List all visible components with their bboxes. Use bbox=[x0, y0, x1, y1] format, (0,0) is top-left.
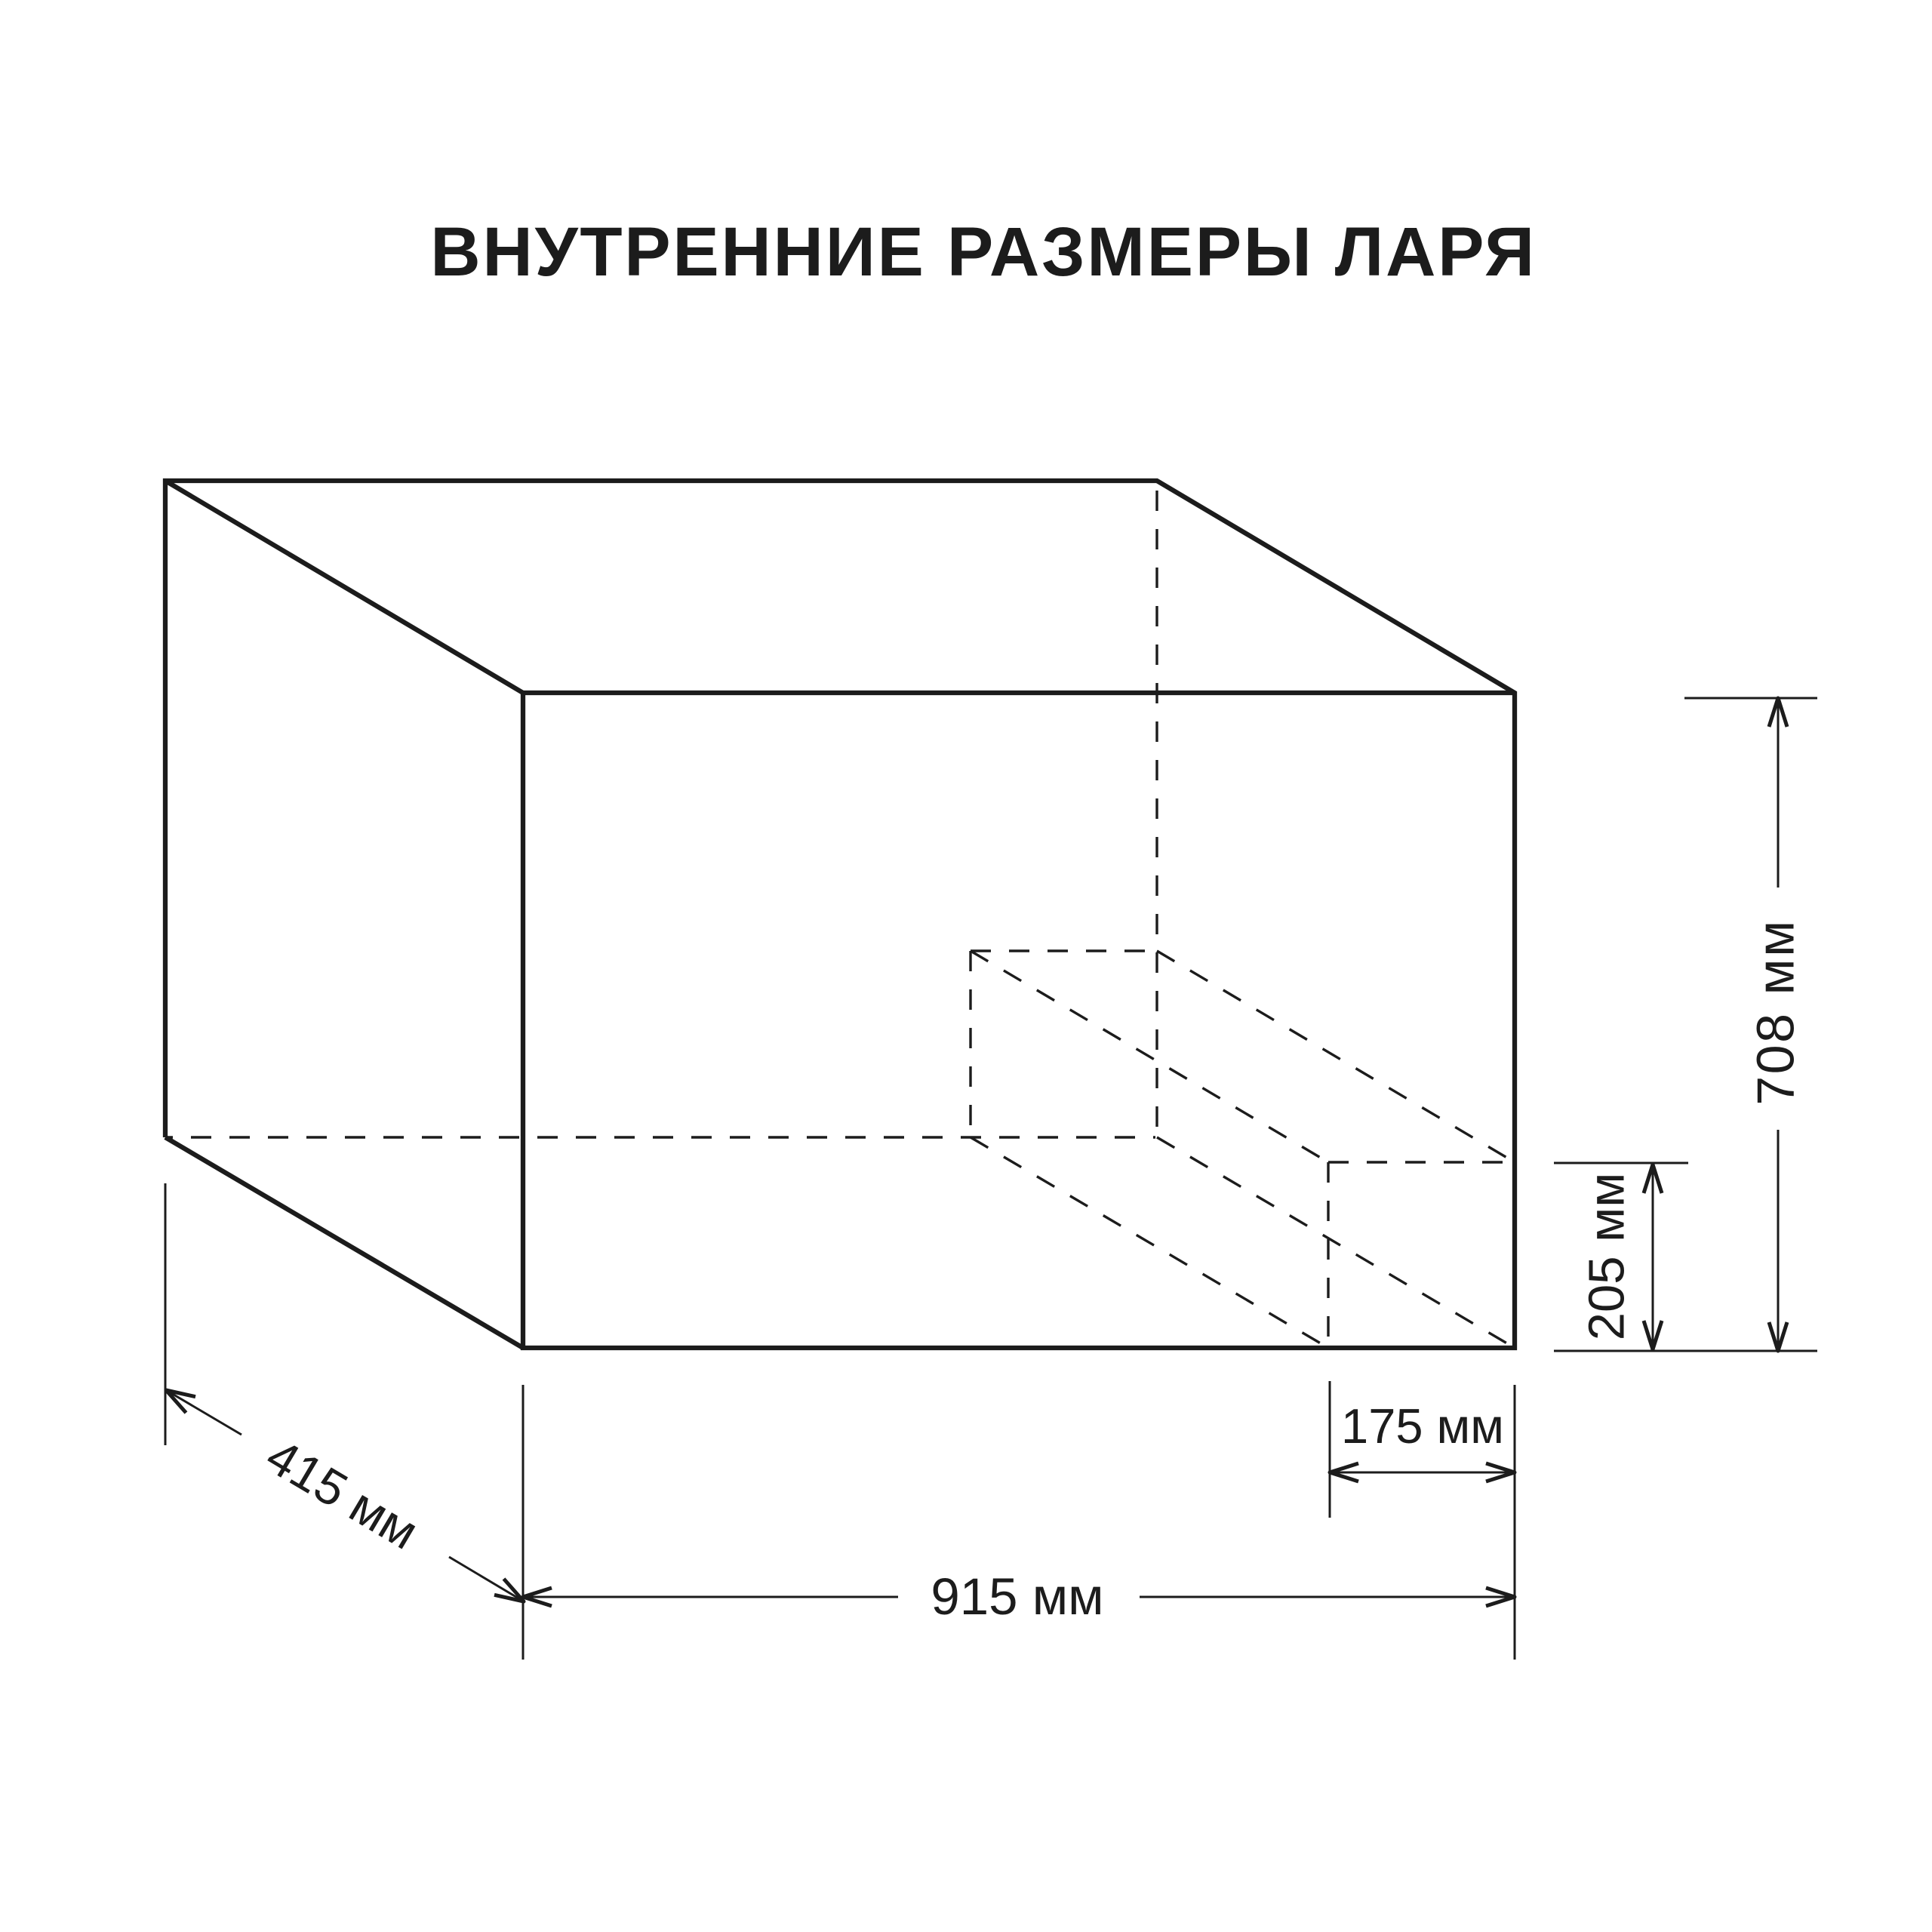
svg-text:175 мм: 175 мм bbox=[1341, 1398, 1504, 1454]
svg-text:708 мм: 708 мм bbox=[1746, 918, 1804, 1106]
svg-text:915 мм: 915 мм bbox=[931, 1567, 1103, 1626]
svg-text:205 мм: 205 мм bbox=[1579, 1173, 1635, 1341]
svg-text:ВНУТРЕННИЕ РАЗМЕРЫ ЛАРЯ: ВНУТРЕННИЕ РАЗМЕРЫ ЛАРЯ bbox=[430, 214, 1537, 291]
